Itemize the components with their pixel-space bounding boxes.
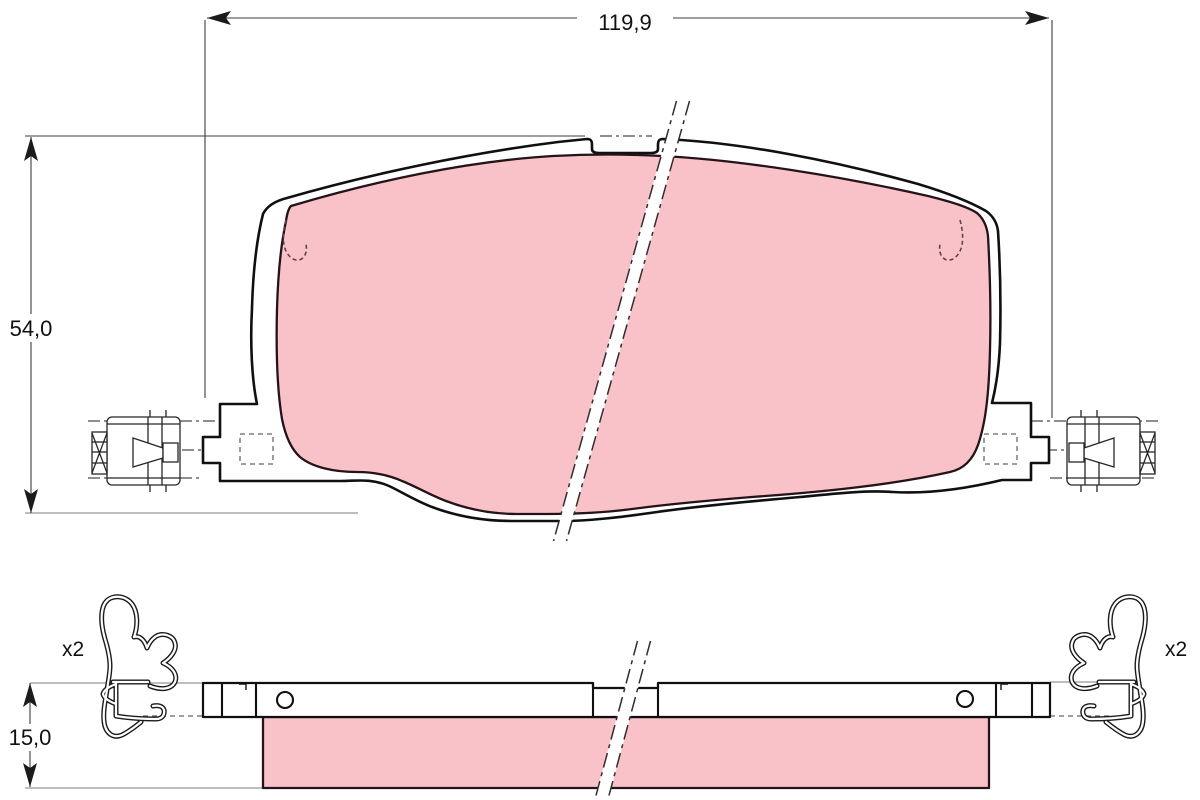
right-pad-clip (1071, 597, 1145, 737)
right-clip-quantity-label: x2 (1165, 638, 1187, 661)
friction-material-front (277, 155, 991, 515)
drawing-canvas: 119,9 54,0 15,0 x2 x2 (0, 0, 1200, 800)
thickness-dimension-label: 15,0 (9, 725, 52, 750)
brake-pad-technical-drawing: 119,9 54,0 15,0 x2 x2 (0, 0, 1200, 800)
left-clip-quantity-label: x2 (62, 638, 84, 661)
left-pad-clip (102, 597, 176, 737)
width-dimension-label: 119,9 (598, 10, 651, 35)
pad-side-view (23, 682, 1113, 788)
left-connector-detail (92, 410, 180, 492)
right-connector-detail (1067, 410, 1155, 492)
height-dimension-label: 54,0 (10, 316, 53, 341)
